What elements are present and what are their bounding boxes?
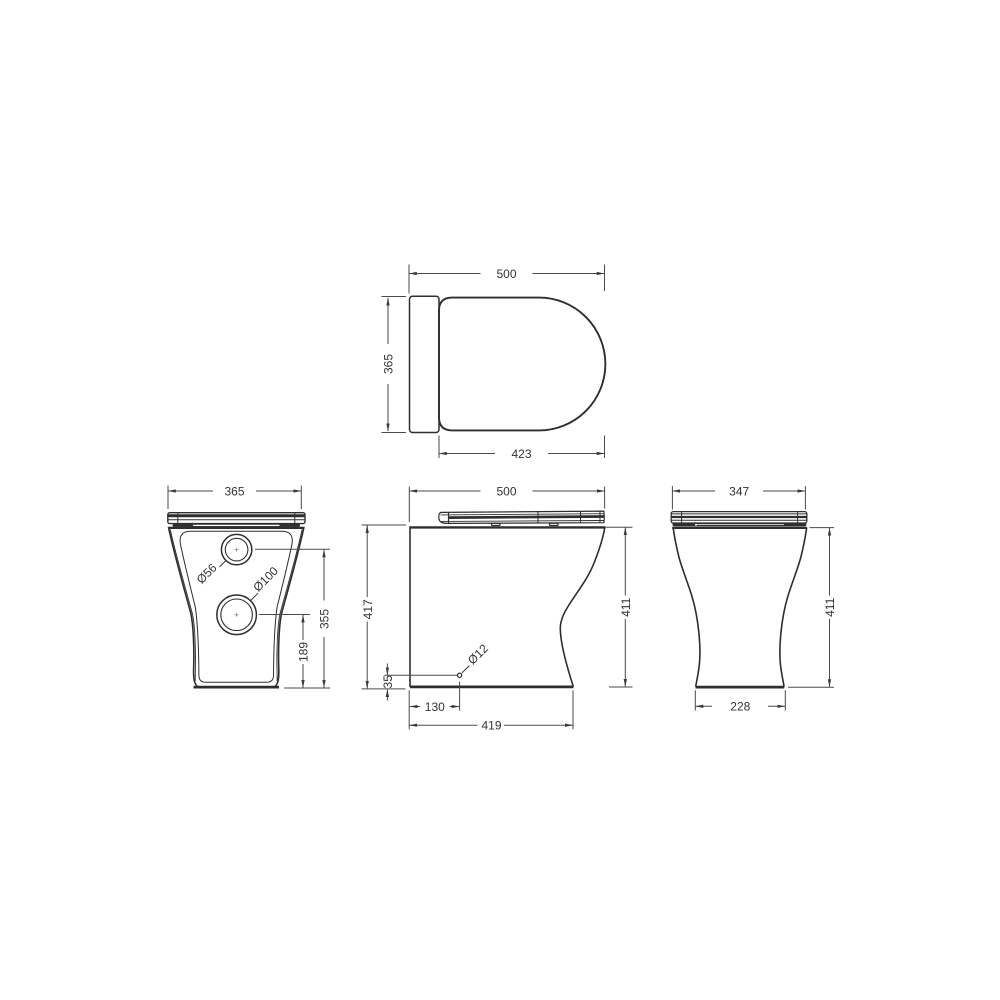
svg-text:411: 411 [619, 597, 633, 616]
svg-text:355: 355 [318, 609, 332, 629]
svg-text:419: 419 [481, 719, 501, 733]
svg-text:500: 500 [496, 484, 516, 498]
svg-text:500: 500 [496, 267, 516, 281]
svg-text:417: 417 [361, 599, 375, 619]
svg-text:423: 423 [511, 447, 531, 461]
svg-text:130: 130 [425, 700, 445, 714]
svg-text:Ø12: Ø12 [465, 641, 491, 667]
svg-text:228: 228 [730, 700, 750, 714]
svg-text:365: 365 [382, 354, 396, 374]
svg-text:Ø100: Ø100 [250, 564, 281, 595]
svg-text:Ø56: Ø56 [194, 560, 220, 586]
svg-text:365: 365 [224, 484, 244, 498]
svg-text:411: 411 [823, 597, 837, 616]
svg-text:35: 35 [381, 675, 395, 689]
svg-text:347: 347 [729, 484, 749, 498]
svg-text:189: 189 [297, 642, 311, 662]
